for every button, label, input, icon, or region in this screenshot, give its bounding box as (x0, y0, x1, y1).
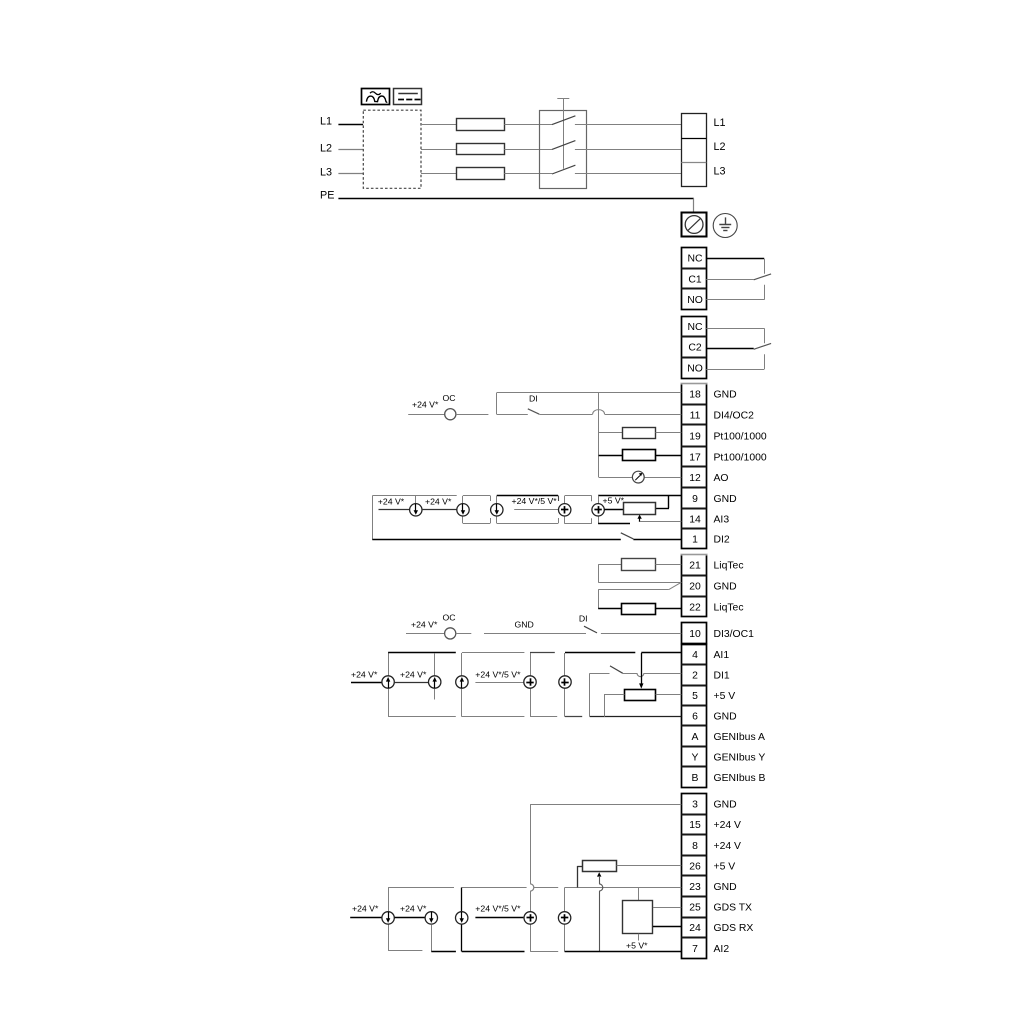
svg-text:+24 V*: +24 V* (378, 497, 405, 507)
svg-text:L1: L1 (714, 117, 726, 129)
svg-text:+24 V: +24 V (714, 820, 742, 831)
svg-text:+5 V*: +5 V* (626, 941, 648, 951)
svg-text:18: 18 (689, 390, 701, 401)
svg-text:17: 17 (689, 452, 701, 463)
svg-text:24: 24 (689, 923, 701, 934)
svg-text:OC: OC (443, 613, 456, 623)
svg-text:21: 21 (689, 561, 701, 572)
svg-text:GENIbus B: GENIbus B (714, 773, 766, 784)
svg-text:L2: L2 (320, 142, 332, 154)
svg-text:12: 12 (689, 473, 701, 484)
svg-text:14: 14 (689, 514, 701, 525)
svg-text:+5 V*: +5 V* (603, 496, 625, 506)
svg-text:AI1: AI1 (714, 650, 730, 661)
svg-text:+24 V*: +24 V* (412, 400, 439, 410)
svg-text:22: 22 (689, 602, 701, 613)
svg-text:+24 V*/5 V*: +24 V*/5 V* (512, 496, 558, 506)
svg-text:+24 V*: +24 V* (400, 904, 427, 914)
svg-text:+24 V*: +24 V* (352, 904, 379, 914)
svg-text:C1: C1 (688, 274, 702, 285)
svg-text:L3: L3 (714, 166, 726, 178)
svg-text:DI4/OC2: DI4/OC2 (714, 410, 755, 421)
svg-text:GND: GND (515, 619, 534, 629)
svg-text:OC: OC (443, 393, 456, 403)
svg-text:Pt100/1000: Pt100/1000 (714, 431, 767, 442)
svg-text:L3: L3 (320, 166, 332, 178)
svg-text:B: B (692, 773, 699, 784)
svg-text:9: 9 (692, 494, 698, 505)
svg-text:NO: NO (687, 364, 703, 375)
svg-text:GND: GND (714, 390, 737, 401)
svg-text:2: 2 (692, 671, 698, 682)
svg-text:GND: GND (714, 800, 737, 811)
svg-text:1: 1 (692, 535, 698, 546)
svg-text:23: 23 (689, 882, 701, 893)
svg-text:NO: NO (687, 295, 703, 306)
svg-text:10: 10 (689, 629, 701, 640)
svg-text:DI: DI (579, 614, 588, 624)
svg-text:3: 3 (692, 800, 698, 811)
svg-text:LiqTec: LiqTec (714, 561, 744, 572)
svg-text:DI3/OC1: DI3/OC1 (714, 629, 755, 640)
svg-text:4: 4 (692, 650, 698, 661)
svg-text:GENIbus A: GENIbus A (714, 732, 765, 743)
svg-text:GND: GND (714, 582, 737, 593)
svg-text:+5 V: +5 V (714, 861, 736, 872)
svg-text:GND: GND (714, 494, 737, 505)
svg-text:15: 15 (689, 820, 701, 831)
svg-text:AI3: AI3 (714, 514, 730, 525)
svg-text:26: 26 (689, 861, 701, 872)
svg-text:GND: GND (714, 882, 737, 893)
svg-text:11: 11 (690, 410, 701, 421)
svg-text:GENIbus Y: GENIbus Y (714, 752, 766, 763)
svg-text:Pt100/1000: Pt100/1000 (714, 452, 767, 463)
svg-text:GND: GND (714, 712, 737, 723)
svg-text:+24 V*: +24 V* (425, 497, 452, 507)
svg-text:NC: NC (687, 254, 703, 265)
svg-text:AO: AO (714, 473, 729, 484)
svg-text:GDS TX: GDS TX (714, 903, 753, 914)
svg-text:+24 V*: +24 V* (400, 670, 427, 680)
svg-text:+24 V*/5 V*: +24 V*/5 V* (475, 904, 521, 914)
svg-text:A: A (692, 732, 699, 743)
svg-text:+5 V: +5 V (714, 691, 736, 702)
svg-text:+24 V: +24 V (714, 841, 742, 852)
svg-text:L1: L1 (320, 116, 332, 128)
svg-text:7: 7 (692, 944, 698, 955)
svg-text:+24 V*: +24 V* (411, 619, 438, 629)
svg-text:DI: DI (529, 393, 538, 403)
svg-text:NC: NC (687, 322, 703, 333)
svg-text:5: 5 (692, 691, 698, 702)
svg-text:LiqTec: LiqTec (714, 602, 744, 613)
svg-text:6: 6 (692, 712, 698, 723)
svg-text:DI1: DI1 (714, 671, 730, 682)
svg-text:20: 20 (689, 582, 701, 593)
svg-text:8: 8 (692, 841, 698, 852)
svg-text:19: 19 (689, 431, 701, 442)
svg-text:+24 V*: +24 V* (351, 670, 378, 680)
svg-text:L2: L2 (714, 141, 726, 153)
svg-text:DI2: DI2 (714, 535, 730, 546)
svg-text:+24 V*/5 V*: +24 V*/5 V* (475, 670, 521, 680)
svg-text:25: 25 (689, 903, 701, 914)
svg-text:AI2: AI2 (714, 944, 730, 955)
svg-text:C2: C2 (688, 343, 702, 354)
svg-text:GDS RX: GDS RX (714, 923, 754, 934)
svg-text:PE: PE (320, 189, 334, 201)
svg-text:Y: Y (692, 752, 699, 763)
